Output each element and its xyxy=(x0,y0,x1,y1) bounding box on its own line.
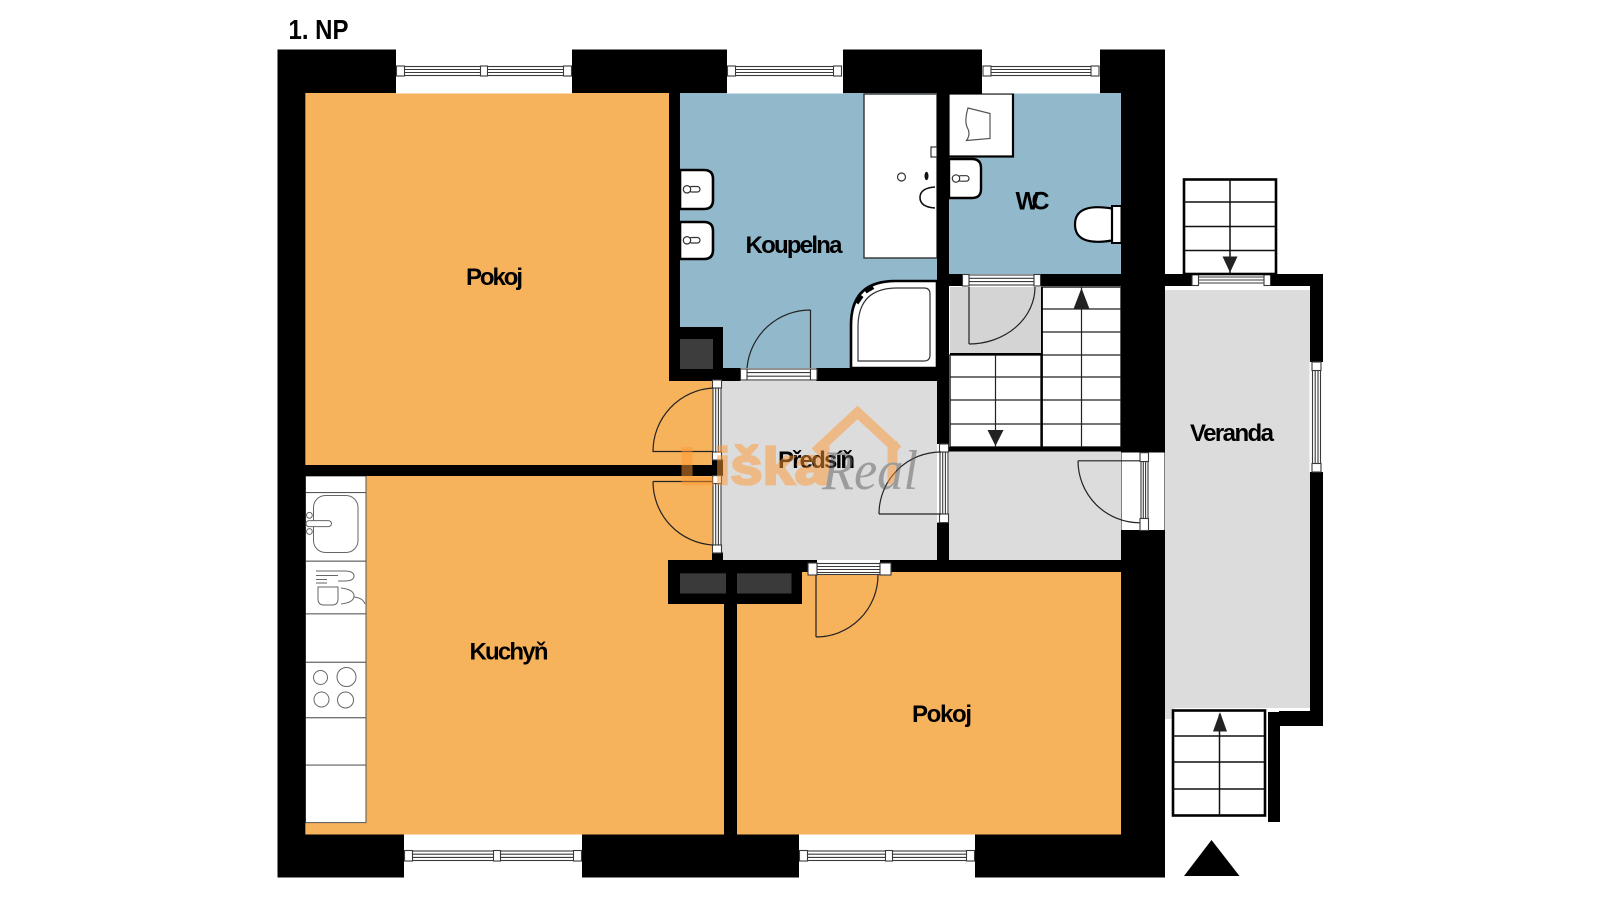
svg-text:Real: Real xyxy=(821,440,918,502)
svg-text:Veranda: Veranda xyxy=(1190,420,1275,447)
svg-text:Pokoj: Pokoj xyxy=(912,701,972,728)
svg-text:Pokoj: Pokoj xyxy=(466,264,523,291)
svg-text:Kuchyň: Kuchyň xyxy=(470,639,549,666)
svg-text:Liška: Liška xyxy=(679,438,828,496)
svg-text:Koupelna: Koupelna xyxy=(746,232,844,259)
svg-text:1. NP: 1. NP xyxy=(289,14,349,45)
svg-text:WC: WC xyxy=(1016,188,1050,216)
